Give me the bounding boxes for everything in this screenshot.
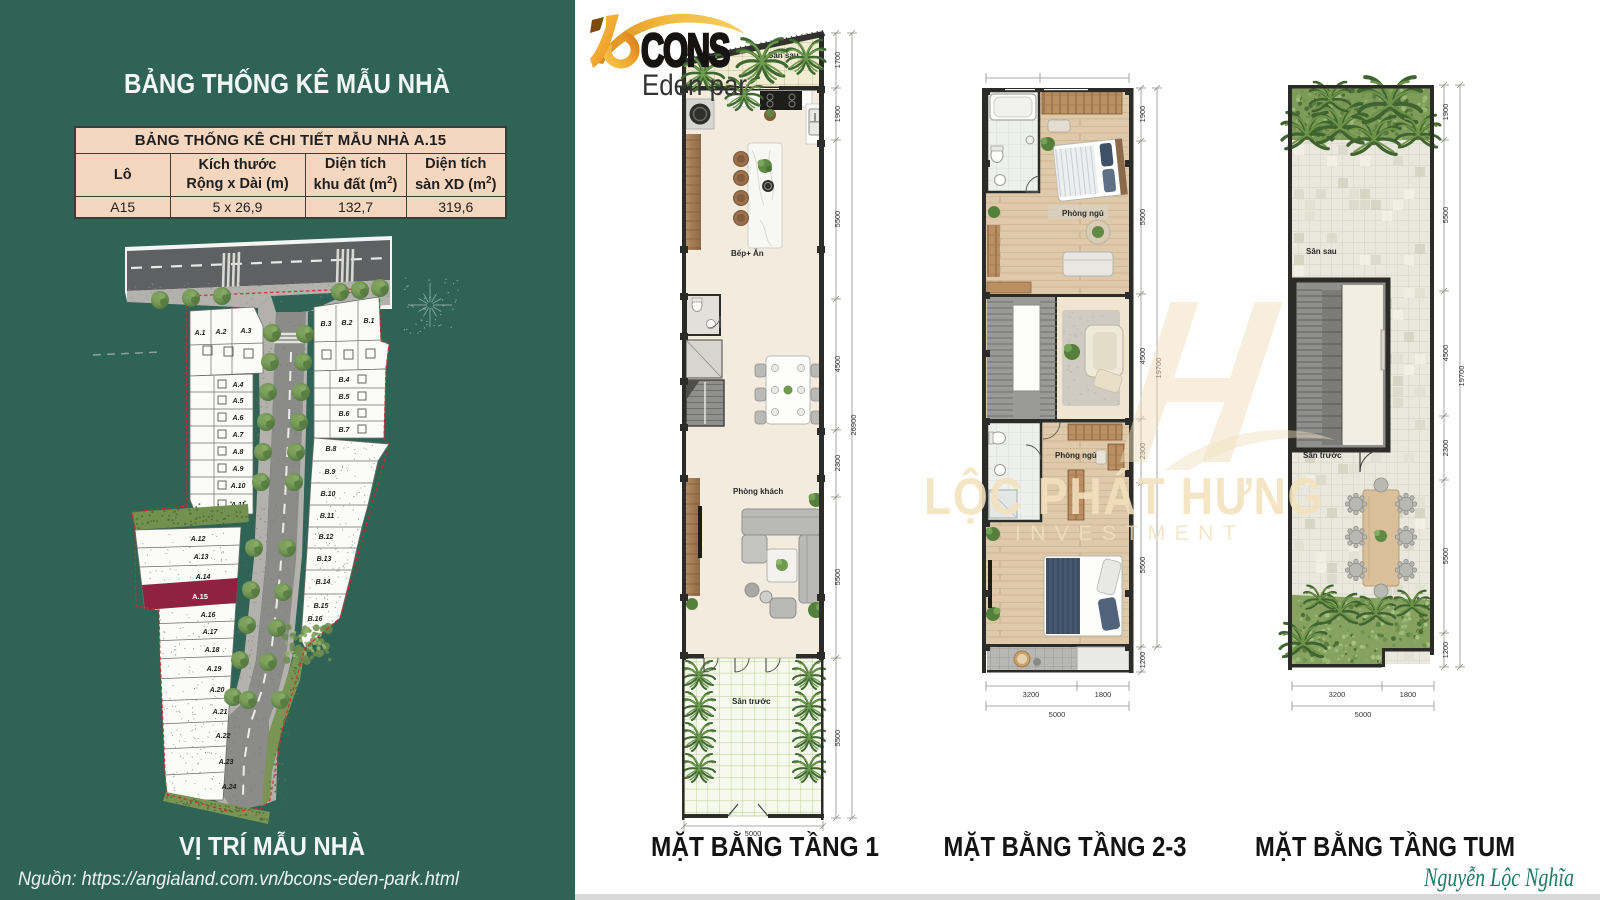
svg-text:Nguyễn Lộc Nghĩa: Nguyễn Lộc Nghĩa [1423, 863, 1574, 892]
svg-text:MẶT BẰNG TẦNG 2-3: MẶT BẰNG TẦNG 2-3 [944, 831, 1187, 862]
svg-text:Nguồn: https://angialand.com.v: Nguồn: https://angialand.com.vn/bcons-ed… [18, 868, 460, 890]
svg-text:VỊ TRÍ MẪU NHÀ: VỊ TRÍ MẪU NHÀ [179, 831, 365, 861]
svg-text:MẶT BẰNG TẦNG 1: MẶT BẰNG TẦNG 1 [651, 831, 879, 862]
svg-text:BẢNG THỐNG KÊ MẪU NHÀ: BẢNG THỐNG KÊ MẪU NHÀ [124, 67, 450, 99]
svg-text:MẶT BẰNG TẦNG TUM: MẶT BẰNG TẦNG TUM [1255, 831, 1515, 862]
